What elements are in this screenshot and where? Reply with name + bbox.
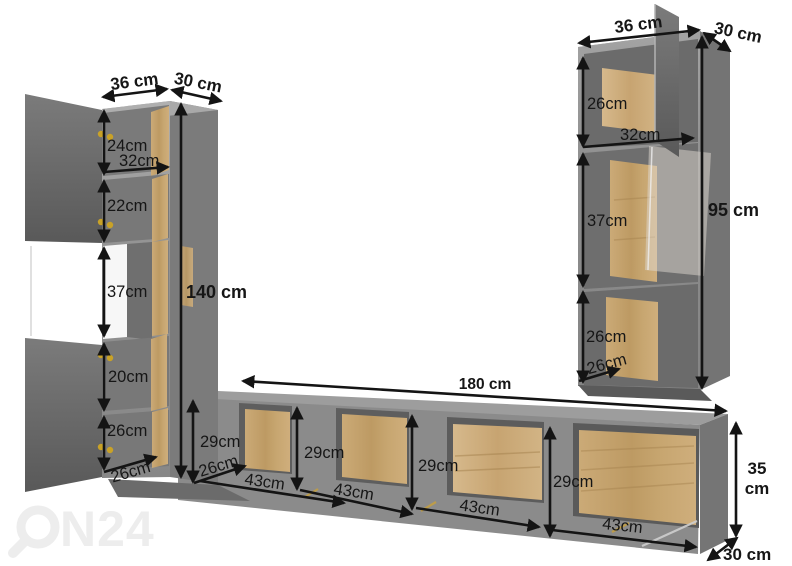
left-cabinet-shelf3-wood — [152, 240, 168, 336]
label-left-shelf2: 22cm — [107, 197, 147, 215]
on24-logo-handle-icon — [13, 541, 25, 553]
on24-watermark: N24 — [13, 501, 155, 557]
label-left-height: 140 cm — [186, 282, 247, 302]
left-cabinet-shelf5-wood — [152, 408, 168, 468]
label-right-shelf1: 26cm — [587, 95, 627, 113]
label-right-depth-top: 30 cm — [713, 18, 764, 47]
tv-compartment-4-wood-back — [579, 430, 696, 525]
diagram-canvas: N24 — [0, 0, 792, 566]
label-tv-height-line1: 35 — [748, 459, 767, 478]
left-cabinet-open-door-top — [25, 94, 102, 243]
label-left-shelf3: 37cm — [107, 283, 147, 301]
watermark-text: N24 — [60, 501, 155, 557]
label-tv-width: 180 cm — [459, 376, 512, 393]
tv-compartment-3-wood-back — [453, 424, 542, 500]
label-tv-comp1-height: 29cm — [200, 433, 240, 451]
tv-compartment-2-wood-back — [342, 414, 407, 484]
label-left-inner-width: 32cm — [119, 152, 159, 170]
label-right-inner-width: 32cm — [620, 126, 660, 144]
label-right-shelf3: 26cm — [586, 328, 626, 346]
left-cabinet-open-door-bottom — [25, 338, 102, 492]
label-tv-depth: 30 cm — [723, 545, 771, 564]
label-tv-height-line2: cm — [745, 479, 770, 498]
label-tv-comp3-height: 29cm — [418, 457, 458, 475]
label-left-shelf5: 26cm — [107, 422, 147, 440]
tv-stand-right-side — [700, 414, 728, 554]
left-cabinet-shelf2-wood — [152, 174, 168, 242]
tv-compartment-1-wood-back — [245, 409, 290, 472]
furniture-dimension-diagram: N24 — [0, 0, 792, 566]
label-right-height: 95 cm — [708, 200, 759, 220]
label-left-shelf4: 20cm — [108, 368, 148, 386]
label-tv-comp2-height: 29cm — [304, 444, 344, 462]
label-tv-comp4-height: 29cm — [553, 473, 593, 491]
left-cabinet-shelf4-wood — [151, 334, 167, 411]
label-right-shelf2: 37cm — [587, 212, 627, 230]
